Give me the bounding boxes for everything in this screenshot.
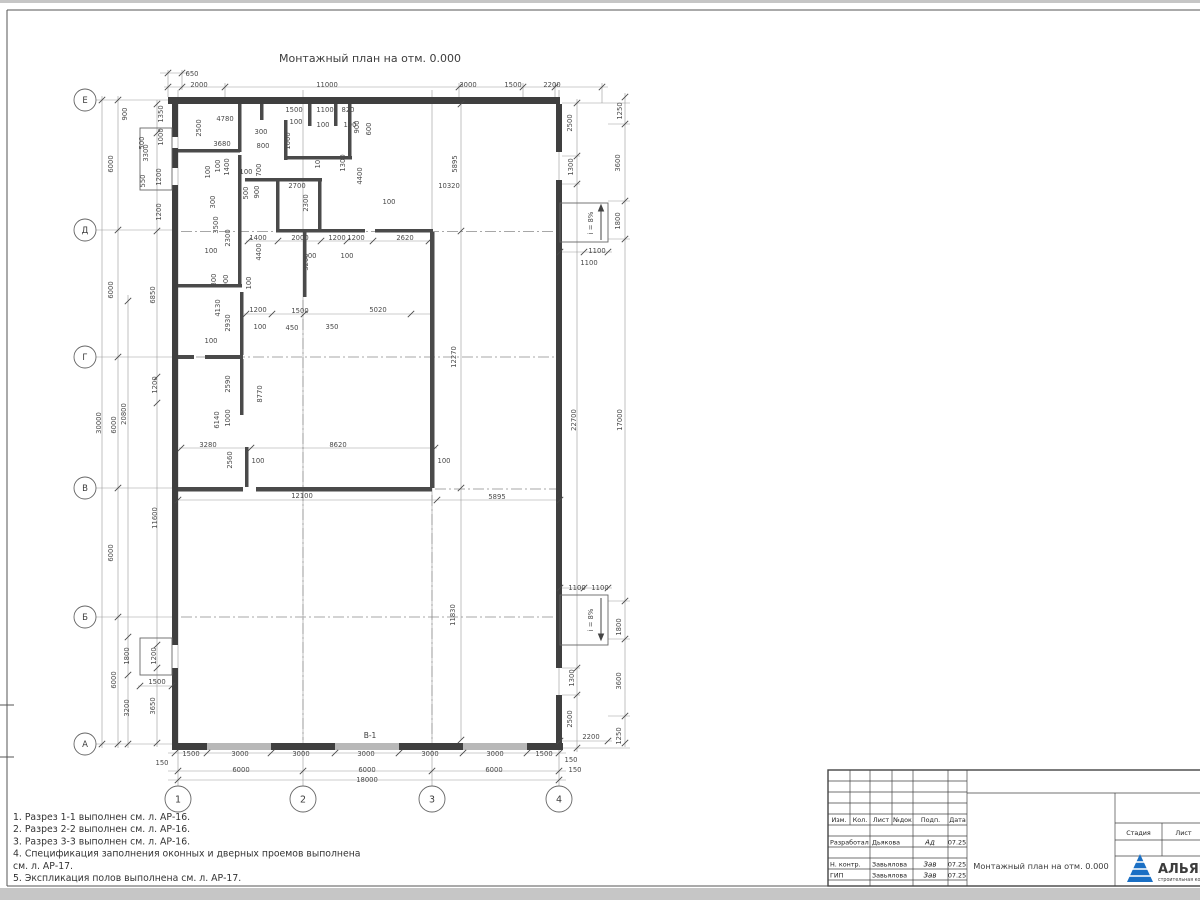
dimension-label: 500 xyxy=(138,137,146,150)
note-line: 5. Экспликация полов выполнена см. л. АР… xyxy=(13,873,241,884)
paper-sheet xyxy=(0,3,1200,888)
note-line: 3. Разрез 3-3 выполнен см. л. АР-16. xyxy=(13,836,190,847)
gate-mark-label: В-1 xyxy=(364,731,377,740)
dimension-label: 1800 xyxy=(615,618,623,635)
company-tagline: строительная ком xyxy=(1158,878,1200,883)
dimension-label: 1300 xyxy=(568,669,576,686)
dimension-label: 2000 xyxy=(190,81,207,89)
dimension-label: 4130 xyxy=(214,299,222,316)
dimension-label: 3000 xyxy=(292,750,309,758)
dimension-label: 150 xyxy=(565,756,578,764)
dimension-label: 100 xyxy=(341,252,354,260)
dimension-label: 3600 xyxy=(615,672,623,689)
dimension-label: 1250 xyxy=(615,727,623,744)
dimension-label: 3000 xyxy=(459,81,476,89)
dimension-label: 600 xyxy=(365,123,373,136)
dimension-label: 1500 xyxy=(285,106,302,114)
dimension-label: 1100 xyxy=(568,584,585,592)
titleblock-rev-header: Подп. xyxy=(921,816,940,824)
dimension-label: 6000 xyxy=(485,766,502,774)
dimension-label: 650 xyxy=(186,70,199,78)
dimension-label: 6000 xyxy=(358,766,375,774)
note-line: 1. Разрез 1-1 выполнен см. л. АР-16. xyxy=(13,812,190,823)
axis-label-В: В xyxy=(82,484,88,494)
dimension-label: 900 xyxy=(222,275,230,288)
floor-plan-drawing: Монтажный план на отм. 0.000 xyxy=(0,0,1200,900)
dimension-label: 450 xyxy=(286,324,299,332)
axis-label-Г: Г xyxy=(82,353,87,363)
titleblock-name: Дьякова xyxy=(872,839,900,847)
dimension-label: 3000 xyxy=(486,750,503,758)
dimension-label: 18000 xyxy=(356,776,378,784)
dimension-label: 1200 xyxy=(155,203,163,220)
dimension-label: 550 xyxy=(139,175,147,188)
dimension-label: 8770 xyxy=(256,385,264,402)
dimension-label: 100 xyxy=(214,160,222,173)
dimension-label: 11600 xyxy=(151,507,159,529)
dimension-label: 1100 xyxy=(591,584,608,592)
dimension-label: 1100 xyxy=(580,259,597,267)
dimension-label: 1000 xyxy=(157,128,165,145)
dimension-label: 1100 xyxy=(588,247,605,255)
dimension-label: 5895 xyxy=(488,493,505,501)
axis-label-3: 3 xyxy=(429,795,435,806)
dimension-label: 30000 xyxy=(95,412,103,434)
axis-label-Е: Е xyxy=(82,96,87,106)
dimension-label: 1350 xyxy=(157,105,165,122)
axis-label-4: 4 xyxy=(556,795,562,806)
dimension-label: 100 xyxy=(204,166,212,179)
dimension-label: 3650 xyxy=(149,697,157,714)
note-line: см. л. АР-17. xyxy=(13,861,73,872)
dimension-label: 2700 xyxy=(288,182,305,190)
dimension-label: 10320 xyxy=(438,182,460,190)
drawing-sheet-viewer: Монтажный план на отм. 0.000 xyxy=(0,0,1200,900)
dimension-label: 17000 xyxy=(616,409,624,431)
dimension-label: 22700 xyxy=(570,409,578,431)
dimension-label: 150 xyxy=(156,759,169,767)
dimension-label: 1100 xyxy=(316,106,333,114)
dimension-label: 12100 xyxy=(291,492,313,500)
dimension-label: 6140 xyxy=(213,411,221,428)
dimension-label: 2000 xyxy=(291,234,308,242)
dimension-label: 3000 xyxy=(421,750,438,758)
titleblock-rev-header: Кол. xyxy=(853,816,868,824)
dimension-label: 3000 xyxy=(357,750,374,758)
dimension-label: 1800 xyxy=(123,647,131,664)
dimension-label: 1400 xyxy=(249,234,266,242)
titleblock-rev-header: №док xyxy=(892,816,912,824)
title-block-doc-title: Монтажный план на отм. 0.000 xyxy=(973,861,1108,871)
dimension-label: 3500 xyxy=(212,216,220,233)
titleblock-rev-header: Изм. xyxy=(831,816,846,824)
dimension-label: 100 xyxy=(254,323,267,331)
dimension-label: 820 xyxy=(342,106,355,114)
dimension-label: 4400 xyxy=(255,243,263,260)
dimension-label: 6000 xyxy=(110,671,118,688)
dimension-label: 100 xyxy=(240,168,253,176)
titleblock-role: Н. контр. xyxy=(830,861,861,869)
dimension-label: 4400 xyxy=(356,167,364,184)
dimension-label: 1800 xyxy=(614,212,622,229)
dimension-label: 1500 xyxy=(291,307,308,315)
dimension-label: 1200 xyxy=(155,168,163,185)
dimension-label: 2620 xyxy=(396,234,413,242)
dimension-label: 300 xyxy=(210,274,218,287)
dimension-label: 350 xyxy=(326,323,339,331)
dimension-label: 2590 xyxy=(224,375,232,392)
dimension-label: 300 xyxy=(255,128,268,136)
dimension-label: 4780 xyxy=(216,115,233,123)
dimension-label: 1200 xyxy=(249,306,266,314)
axis-label-1: 1 xyxy=(175,795,181,806)
dimension-label: 2300 xyxy=(224,229,232,246)
dimension-label: 500 xyxy=(242,187,250,200)
titleblock-role: Разработал xyxy=(830,839,869,847)
axis-label-Д: Д xyxy=(82,226,89,236)
dimension-label: 2500 xyxy=(195,119,203,136)
titleblock-signature: Ад xyxy=(924,839,935,847)
dimension-label: 1000 xyxy=(224,409,232,426)
titleblock-stage-header: Стадия xyxy=(1126,829,1151,837)
axis-label-Б: Б xyxy=(82,613,88,623)
dimension-label: 5020 xyxy=(369,306,386,314)
dimension-label: 20800 xyxy=(120,403,128,425)
titleblock-date: 07.25 xyxy=(948,839,966,847)
dimension-label: 100 xyxy=(314,156,322,169)
dimension-label: 3200 xyxy=(123,699,131,716)
dimension-label: 2500 xyxy=(566,114,574,131)
dimension-label: 6000 xyxy=(107,544,115,561)
dimension-label: 100 xyxy=(383,198,396,206)
dimension-label: 900 xyxy=(121,108,129,121)
dimension-label: 100 xyxy=(205,247,218,255)
dimension-label: 1250 xyxy=(616,102,624,119)
dimension-label: 2300 xyxy=(302,194,310,211)
dimension-label: 3600 xyxy=(614,154,622,171)
dimension-label: 11830 xyxy=(449,604,457,626)
note-line: 4. Спецификация заполнения оконных и две… xyxy=(13,849,361,860)
dimension-label: 1500 xyxy=(535,750,552,758)
dimension-label: 100 xyxy=(317,121,330,129)
dimension-label: 100 xyxy=(252,457,265,465)
dimension-label: 1400 xyxy=(223,158,231,175)
dimension-label: 2560 xyxy=(226,451,234,468)
dimension-label: 1200 xyxy=(150,647,158,664)
dimension-label: 3200 xyxy=(302,253,310,270)
dimension-label: 900 xyxy=(353,121,361,134)
plan-title: Монтажный план на отм. 0.000 xyxy=(279,52,461,65)
dimension-label: 100 xyxy=(245,277,253,290)
dimension-label: 100 xyxy=(438,457,451,465)
titleblock-signature: Зав xyxy=(924,861,937,869)
dimension-label: 1200 xyxy=(347,234,364,242)
titleblock-signature: Зав xyxy=(924,872,937,880)
axis-label-2: 2 xyxy=(300,795,306,806)
dimension-label: 3000 xyxy=(231,750,248,758)
dimension-label: 1200 xyxy=(328,234,345,242)
company-name: АЛЬЯН xyxy=(1158,862,1200,877)
dimension-label: 6850 xyxy=(149,286,157,303)
dimension-label: 5895 xyxy=(451,155,459,172)
dimension-label: 6000 xyxy=(110,416,118,433)
dimension-label: 2930 xyxy=(224,314,232,331)
titleblock-name: Завьялова xyxy=(872,861,907,869)
dimension-label: 3680 xyxy=(213,140,230,148)
titleblock-date: 07.25 xyxy=(948,872,966,880)
dimension-label: 800 xyxy=(257,142,270,150)
dimension-label: 1500 xyxy=(148,678,165,686)
ramp-slope-label: i = 8% xyxy=(587,211,595,234)
titleblock-date: 07.25 xyxy=(948,861,966,869)
titleblock-name: Завьялова xyxy=(872,872,907,880)
dimension-label: 1300 xyxy=(339,154,347,171)
dimension-label: 1500 xyxy=(182,750,199,758)
dimension-label: 150 xyxy=(569,766,582,774)
titleblock-role: ГИП xyxy=(830,872,844,880)
dimension-label: 12270 xyxy=(450,346,458,368)
dimension-label: 1200 xyxy=(151,376,159,393)
dimension-label: 2200 xyxy=(582,733,599,741)
note-line: 2. Разрез 2-2 выполнен см. л. АР-16. xyxy=(13,824,190,835)
titleblock-rev-header: Лист xyxy=(873,816,889,824)
dimension-label: 2500 xyxy=(566,710,574,727)
dimension-label: 300 xyxy=(209,196,217,209)
dimension-label: 900 xyxy=(253,186,261,199)
dimension-label: 1500 xyxy=(504,81,521,89)
dimension-label: 700 xyxy=(255,164,263,177)
titleblock-rev-header: Дата xyxy=(949,816,966,824)
dimension-label: 3280 xyxy=(199,441,216,449)
dimension-label: 6000 xyxy=(107,155,115,172)
dimension-label: 8620 xyxy=(329,441,346,449)
dimension-label: 100 xyxy=(290,118,303,126)
dimension-label: 1300 xyxy=(567,158,575,175)
axis-label-А: А xyxy=(82,740,88,750)
dimension-label: 6000 xyxy=(232,766,249,774)
dimension-label: 11000 xyxy=(316,81,338,89)
titleblock-stage-header: Лист xyxy=(1175,829,1191,837)
dimension-label: 1000 xyxy=(284,132,292,149)
dimension-label: 100 xyxy=(205,337,218,345)
ramp-slope-label: i = 8% xyxy=(587,608,595,631)
dimension-label: 6000 xyxy=(107,281,115,298)
dimension-label: 2200 xyxy=(543,81,560,89)
